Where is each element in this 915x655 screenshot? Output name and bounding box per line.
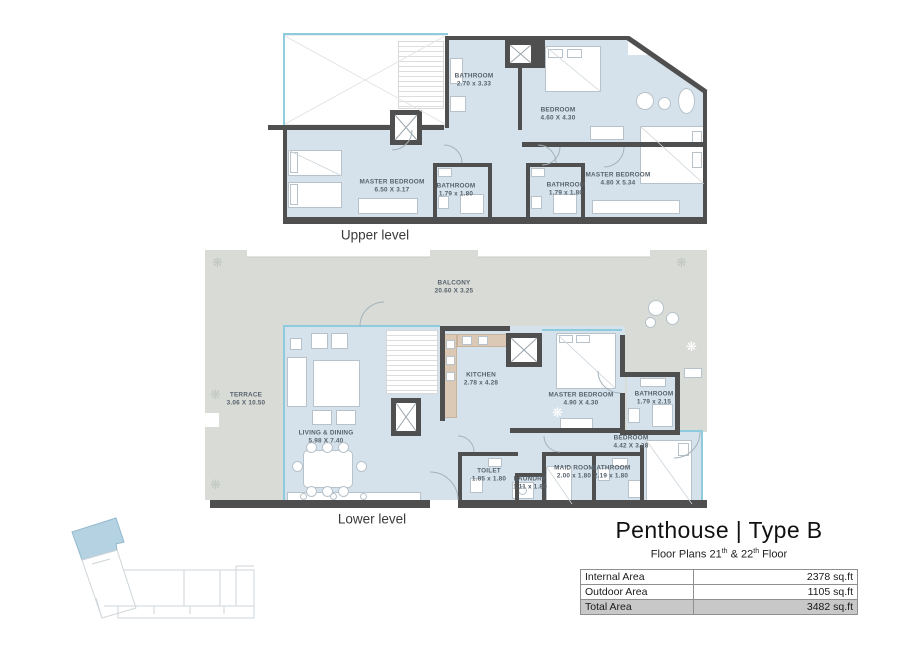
furniture-pillow bbox=[559, 335, 573, 343]
area-label: Internal Area bbox=[581, 569, 694, 584]
furniture-planter bbox=[658, 97, 671, 110]
elevator-shaft-inner bbox=[396, 403, 416, 431]
duct-shaft-inner bbox=[511, 338, 537, 362]
site-plan-highlighted-unit bbox=[72, 518, 124, 560]
cabinet-knob bbox=[360, 493, 367, 500]
furniture-chair bbox=[306, 486, 317, 497]
furniture-pillow bbox=[576, 335, 590, 343]
furniture-chair bbox=[322, 486, 333, 497]
window-line bbox=[283, 33, 285, 127]
plant-icon: ❋ bbox=[210, 478, 221, 491]
window-line bbox=[542, 329, 622, 331]
kitchen-appliance bbox=[446, 372, 455, 381]
furniture-wardrobe bbox=[358, 198, 418, 214]
floor-plan-sheet: ❋ ❋ ❋ ❋ ❋ ❋ bbox=[0, 0, 915, 655]
duct-shaft-inner bbox=[510, 45, 531, 63]
room-label-toilet: TOILET1.85 x 1.80 bbox=[472, 467, 506, 482]
plant-icon: ❋ bbox=[212, 256, 223, 269]
furniture-chair bbox=[338, 486, 349, 497]
wall-segment bbox=[283, 217, 707, 224]
furniture-side-table bbox=[290, 338, 302, 350]
wall-segment bbox=[522, 142, 707, 147]
wall-segment bbox=[488, 163, 492, 219]
kitchen-appliance bbox=[446, 356, 455, 365]
furniture-pillow bbox=[678, 443, 689, 456]
furniture-chair bbox=[356, 461, 367, 472]
furniture-dining-table bbox=[303, 450, 353, 488]
fixture-shower bbox=[450, 96, 466, 112]
table-row-outdoor-area: Outdoor Area 1105 sq.ft bbox=[581, 584, 858, 599]
room-label-bedroom: BEDROOM4.60 X 4.30 bbox=[541, 106, 576, 121]
subtitle-text: & 22 bbox=[728, 549, 754, 561]
wall-segment bbox=[620, 393, 625, 433]
kitchen-appliance bbox=[446, 340, 455, 349]
area-value: 3482 sq.ft bbox=[694, 599, 858, 614]
site-key-plan bbox=[72, 518, 254, 618]
room-label-bathroom: BATHROOM1.79 x 1.80 bbox=[437, 182, 476, 197]
furniture-chair bbox=[292, 461, 303, 472]
wall-segment bbox=[526, 163, 585, 167]
room-label-bathroom: BATHROOM1.79 x 2.15 bbox=[635, 390, 674, 405]
wall-segment bbox=[458, 452, 518, 456]
furniture-wardrobe bbox=[592, 200, 680, 214]
wall-segment bbox=[510, 428, 625, 433]
room-label-master-bedroom: MASTER BEDROOM6.50 X 3.17 bbox=[360, 178, 425, 193]
room-label-master-bedroom: MASTER BEDROOM4.90 X 4.30 bbox=[549, 391, 614, 406]
area-value: 1105 sq.ft bbox=[694, 584, 858, 599]
wall-segment bbox=[283, 125, 287, 222]
furniture-planter bbox=[648, 300, 664, 316]
window-line bbox=[701, 430, 703, 506]
furniture-pillow bbox=[290, 152, 298, 173]
furniture-armchair bbox=[331, 333, 348, 349]
fixture-toilet bbox=[531, 196, 542, 209]
room-label-balcony: BALCONY20.60 X 3.25 bbox=[435, 279, 474, 294]
furniture-rug bbox=[313, 360, 360, 407]
furniture-pouf bbox=[336, 410, 356, 425]
balcony-edge-notch bbox=[478, 250, 650, 257]
furniture-armchair bbox=[311, 333, 328, 349]
fixture-sink bbox=[438, 168, 452, 177]
room-label-laundry: LAUNDRY1.11 x 1.80 bbox=[513, 475, 547, 490]
kitchen-appliance bbox=[462, 336, 472, 345]
window-line bbox=[283, 325, 285, 502]
fixture-sink bbox=[531, 168, 545, 177]
plant-icon: ❋ bbox=[552, 406, 563, 419]
duct-shaft-inner bbox=[395, 115, 417, 140]
fixture-toilet bbox=[438, 196, 449, 209]
fixture-shower bbox=[652, 404, 673, 427]
room-label-bathroom: BATHROOM2.19 x 1.80 bbox=[592, 464, 631, 479]
window-line bbox=[283, 325, 440, 327]
plan-subtitle: Floor Plans 21th & 22th Floor bbox=[580, 548, 858, 561]
room-label-maid-room: MAID ROOM2.00 x 1.80 bbox=[554, 464, 594, 479]
wall-segment bbox=[440, 326, 445, 421]
window-line bbox=[677, 430, 703, 432]
furniture-desk bbox=[590, 126, 624, 140]
area-label: Total Area bbox=[581, 599, 694, 614]
plant-icon: ❋ bbox=[210, 388, 221, 401]
subtitle-text: Floor Plans 21 bbox=[651, 549, 722, 561]
fixture-toilet bbox=[628, 408, 640, 423]
furniture-table bbox=[684, 368, 702, 378]
fixture-shower bbox=[553, 194, 577, 214]
room-label-bathroom: BATHROOM2.70 x 3.33 bbox=[455, 72, 494, 87]
furniture-pillow bbox=[290, 184, 298, 205]
furniture-pillow bbox=[548, 49, 563, 58]
area-label: Outdoor Area bbox=[581, 584, 694, 599]
fixture-sink bbox=[488, 458, 502, 467]
room-label-bedroom: BEDROOM4.42 X 3.28 bbox=[614, 434, 649, 449]
terrace-area bbox=[205, 250, 285, 500]
furniture-sofa bbox=[287, 357, 307, 407]
area-value: 2378 sq.ft bbox=[694, 569, 858, 584]
title-block: Penthouse | Type B Floor Plans 21th & 22… bbox=[580, 517, 858, 615]
furniture-planter bbox=[645, 317, 656, 328]
furniture-pillow bbox=[692, 152, 702, 168]
wall-segment bbox=[210, 500, 707, 508]
furniture-pouf bbox=[312, 410, 332, 425]
wall-segment bbox=[620, 335, 625, 375]
furniture-planter bbox=[636, 92, 654, 110]
table-row-total-area: Total Area 3482 sq.ft bbox=[581, 599, 858, 614]
plan-title: Penthouse | Type B bbox=[580, 517, 858, 544]
wall-segment bbox=[458, 452, 462, 502]
plant-icon: ❋ bbox=[686, 340, 697, 353]
room-label-master-bedroom: MASTER BEDROOM4.80 X 5.34 bbox=[586, 171, 651, 186]
room-label-living-dining: LIVING & DINING5.98 X 7.40 bbox=[299, 429, 354, 444]
upper-level-caption: Upper level bbox=[341, 228, 409, 243]
furniture-planter bbox=[678, 88, 695, 114]
wall-segment bbox=[433, 163, 492, 167]
plant-icon: ❋ bbox=[676, 256, 687, 269]
wall-segment bbox=[526, 163, 530, 219]
window-line bbox=[283, 33, 448, 35]
wall-segment bbox=[675, 372, 680, 435]
wall-segment bbox=[620, 372, 680, 377]
wall-segment bbox=[703, 88, 707, 224]
table-row-internal-area: Internal Area 2378 sq.ft bbox=[581, 569, 858, 584]
wall-segment bbox=[445, 36, 449, 128]
furniture-planter bbox=[666, 312, 679, 325]
wall-segment bbox=[440, 326, 510, 331]
balcony-edge-notch bbox=[247, 250, 430, 257]
terrace-edge-notch bbox=[203, 413, 219, 427]
staircase bbox=[386, 330, 438, 394]
kitchen-appliance bbox=[478, 336, 488, 345]
subtitle-text: Floor bbox=[759, 549, 787, 561]
wall-segment bbox=[640, 445, 644, 502]
room-label-kitchen: KITCHEN2.78 x 4.28 bbox=[464, 371, 498, 386]
entry-door-gap bbox=[430, 500, 458, 508]
lower-level-caption: Lower level bbox=[338, 512, 406, 527]
room-label-terrace: TERRACE3.06 X 10.50 bbox=[227, 391, 266, 406]
staircase bbox=[398, 41, 444, 109]
furniture-pillow bbox=[567, 49, 582, 58]
area-table: Internal Area 2378 sq.ft Outdoor Area 11… bbox=[580, 569, 858, 615]
room-label-bathroom: BATHROOM1.79 x 1.80 bbox=[547, 181, 586, 196]
fixture-sink bbox=[640, 378, 666, 387]
